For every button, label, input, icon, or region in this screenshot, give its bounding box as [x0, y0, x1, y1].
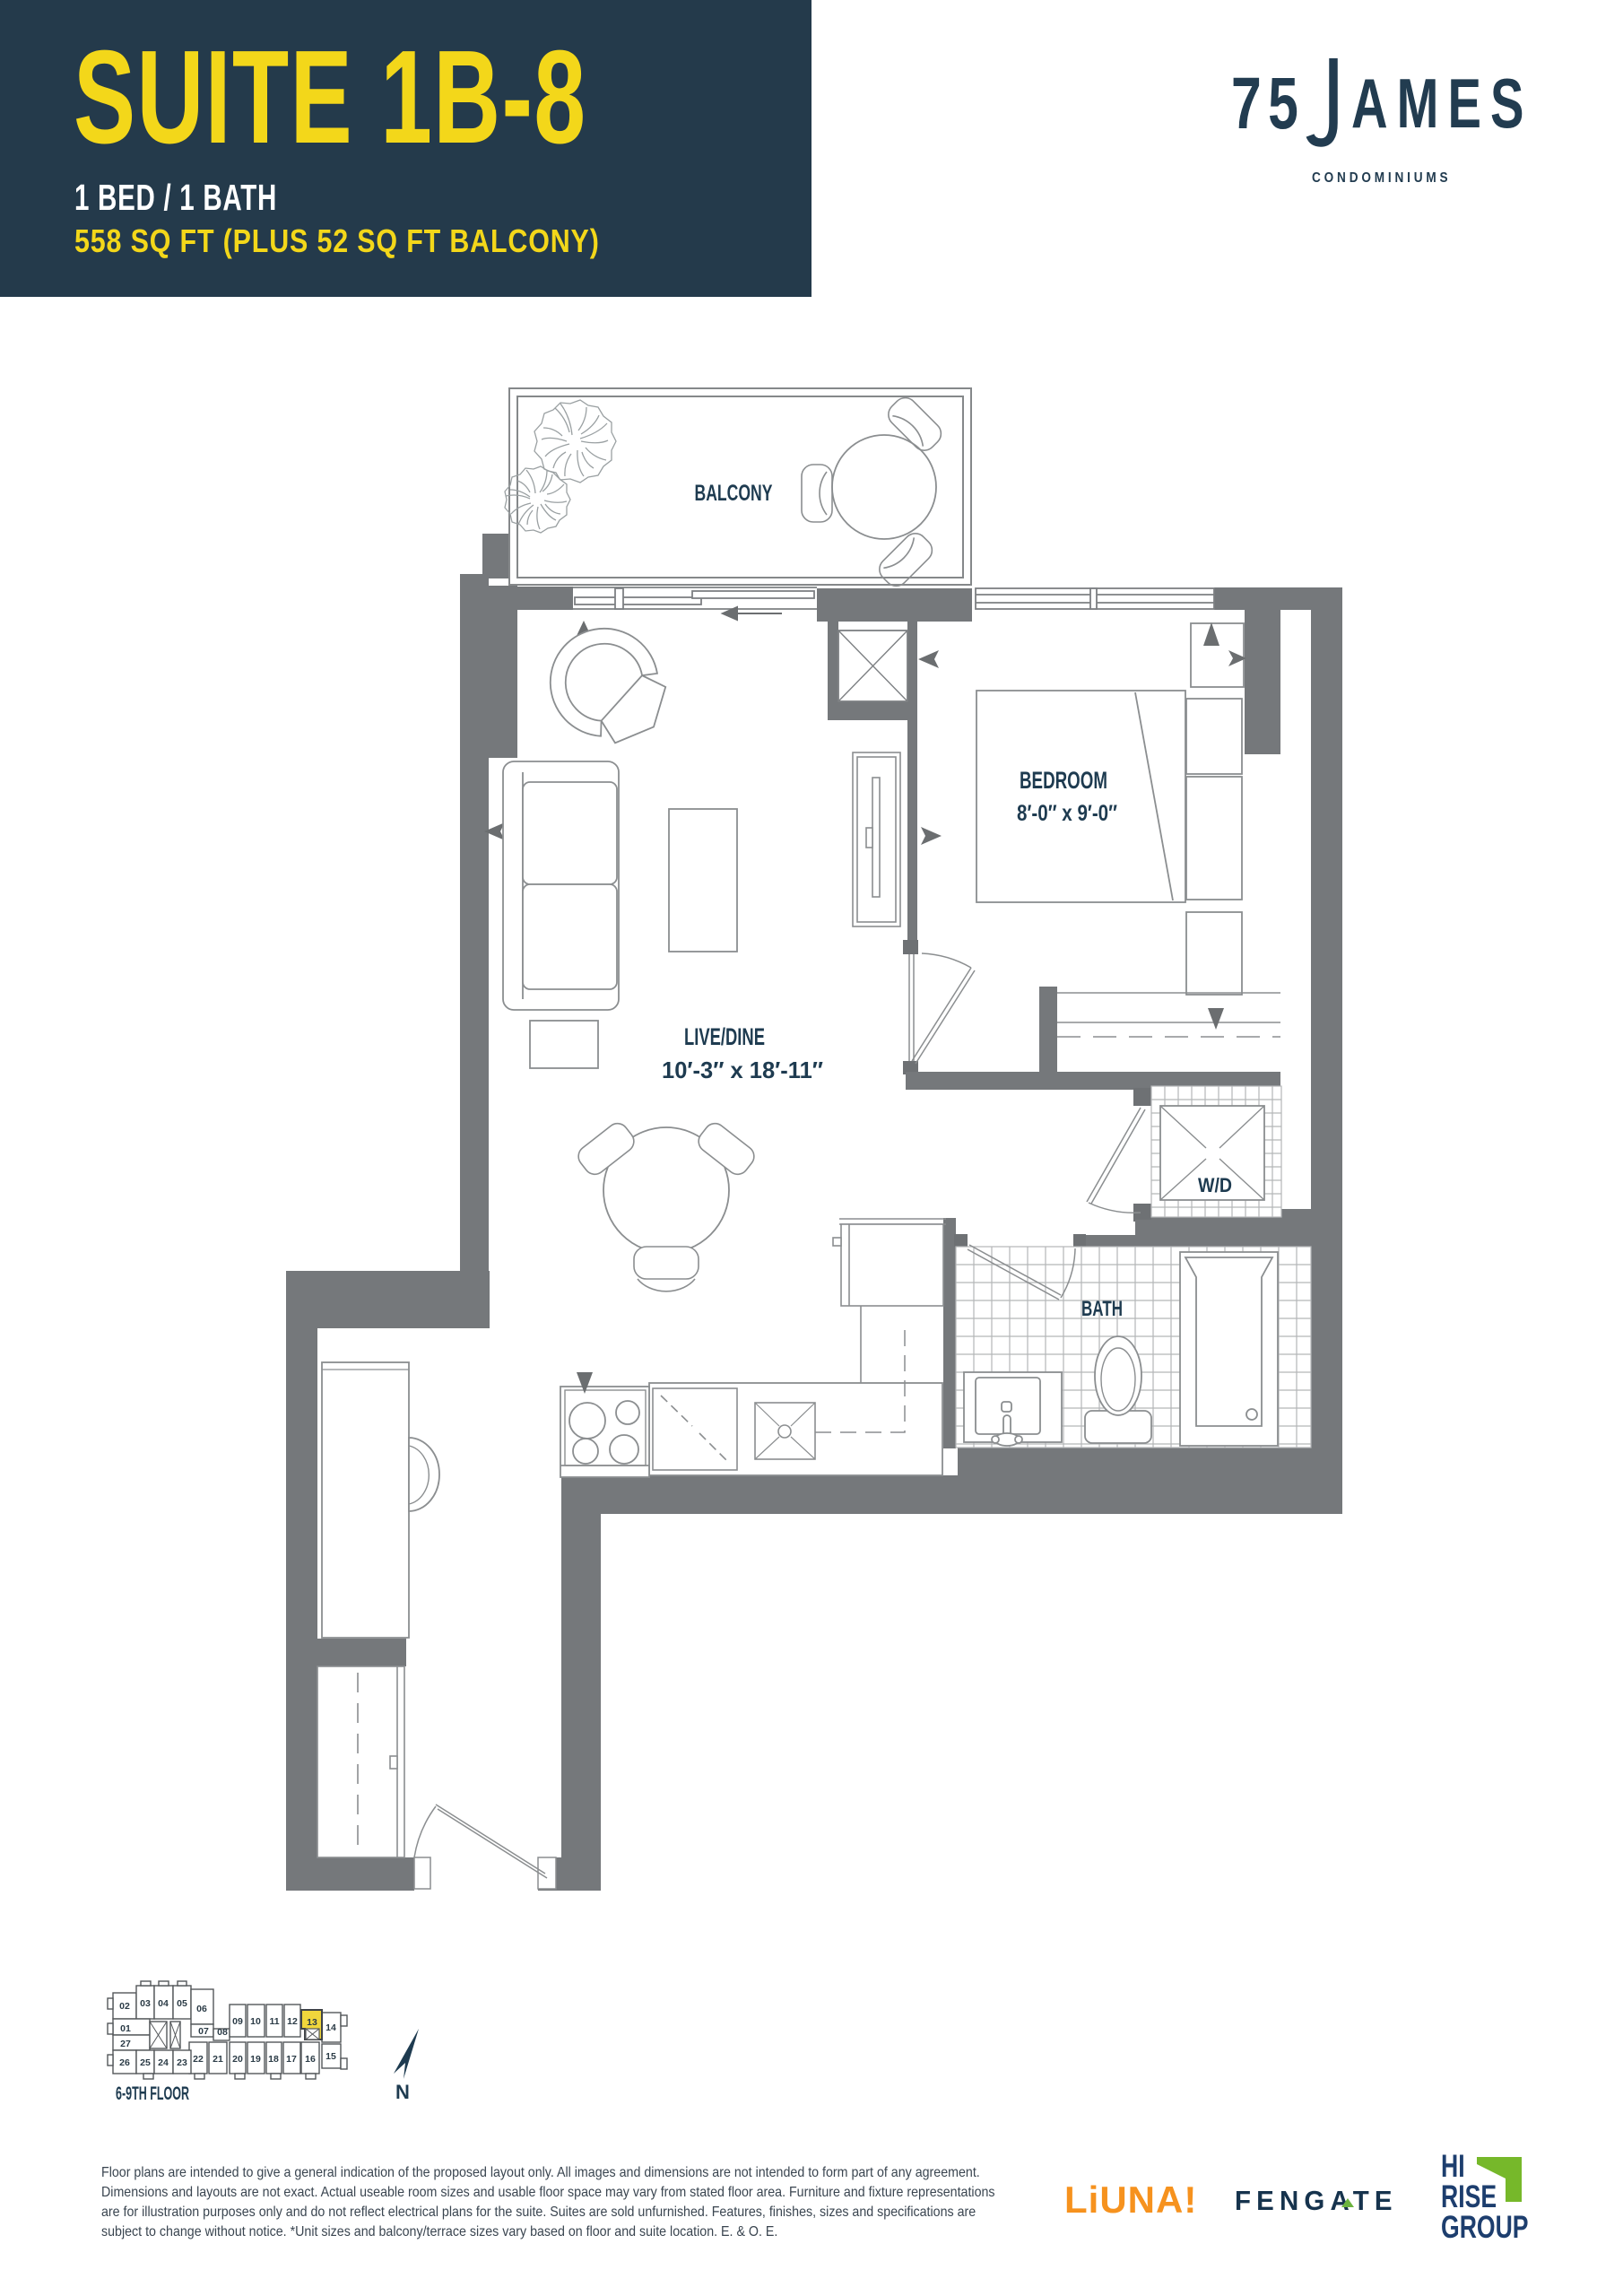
svg-text:23: 23: [177, 2057, 187, 2068]
svg-text:26: 26: [119, 2057, 130, 2068]
svg-text:19: 19: [250, 2054, 261, 2065]
svg-text:04: 04: [158, 1998, 169, 2009]
svg-text:LIVE/DINE: LIVE/DINE: [684, 1023, 765, 1050]
svg-text:12: 12: [287, 2016, 298, 2027]
svg-text:05: 05: [177, 1998, 187, 2009]
svg-text:02: 02: [119, 2001, 130, 2012]
svg-text:14: 14: [325, 2022, 336, 2033]
svg-text:18: 18: [268, 2054, 279, 2065]
svg-text:BALCONY: BALCONY: [695, 481, 773, 506]
svg-text:W/D: W/D: [1198, 1174, 1232, 1196]
svg-text:09: 09: [232, 2016, 243, 2027]
svg-text:27: 27: [120, 2039, 131, 2049]
svg-text:16: 16: [305, 2054, 316, 2065]
svg-text:01: 01: [120, 2023, 131, 2034]
svg-text:11: 11: [269, 2016, 279, 2027]
svg-text:BATH: BATH: [1081, 1297, 1123, 1321]
svg-text:08: 08: [217, 2027, 228, 2038]
svg-text:06: 06: [196, 2004, 207, 2014]
svg-text:20: 20: [232, 2054, 243, 2065]
svg-text:24: 24: [158, 2057, 169, 2068]
svg-text:BEDROOM: BEDROOM: [1020, 767, 1107, 794]
svg-text:N: N: [395, 2081, 410, 2103]
svg-text:15: 15: [325, 2051, 336, 2062]
svg-text:6-9TH FLOOR: 6-9TH FLOOR: [116, 2083, 189, 2104]
svg-text:07: 07: [198, 2026, 209, 2037]
svg-text:8′-0″ x 9′-0″: 8′-0″ x 9′-0″: [1017, 801, 1117, 826]
svg-text:10′-3″ x 18′-11″: 10′-3″ x 18′-11″: [662, 1057, 823, 1083]
svg-text:13: 13: [307, 2017, 317, 2028]
svg-text:21: 21: [213, 2054, 223, 2065]
svg-text:03: 03: [140, 1998, 151, 2009]
svg-text:22: 22: [193, 2054, 204, 2065]
svg-text:25: 25: [140, 2057, 151, 2068]
svg-text:10: 10: [250, 2016, 261, 2027]
svg-text:17: 17: [286, 2054, 297, 2065]
